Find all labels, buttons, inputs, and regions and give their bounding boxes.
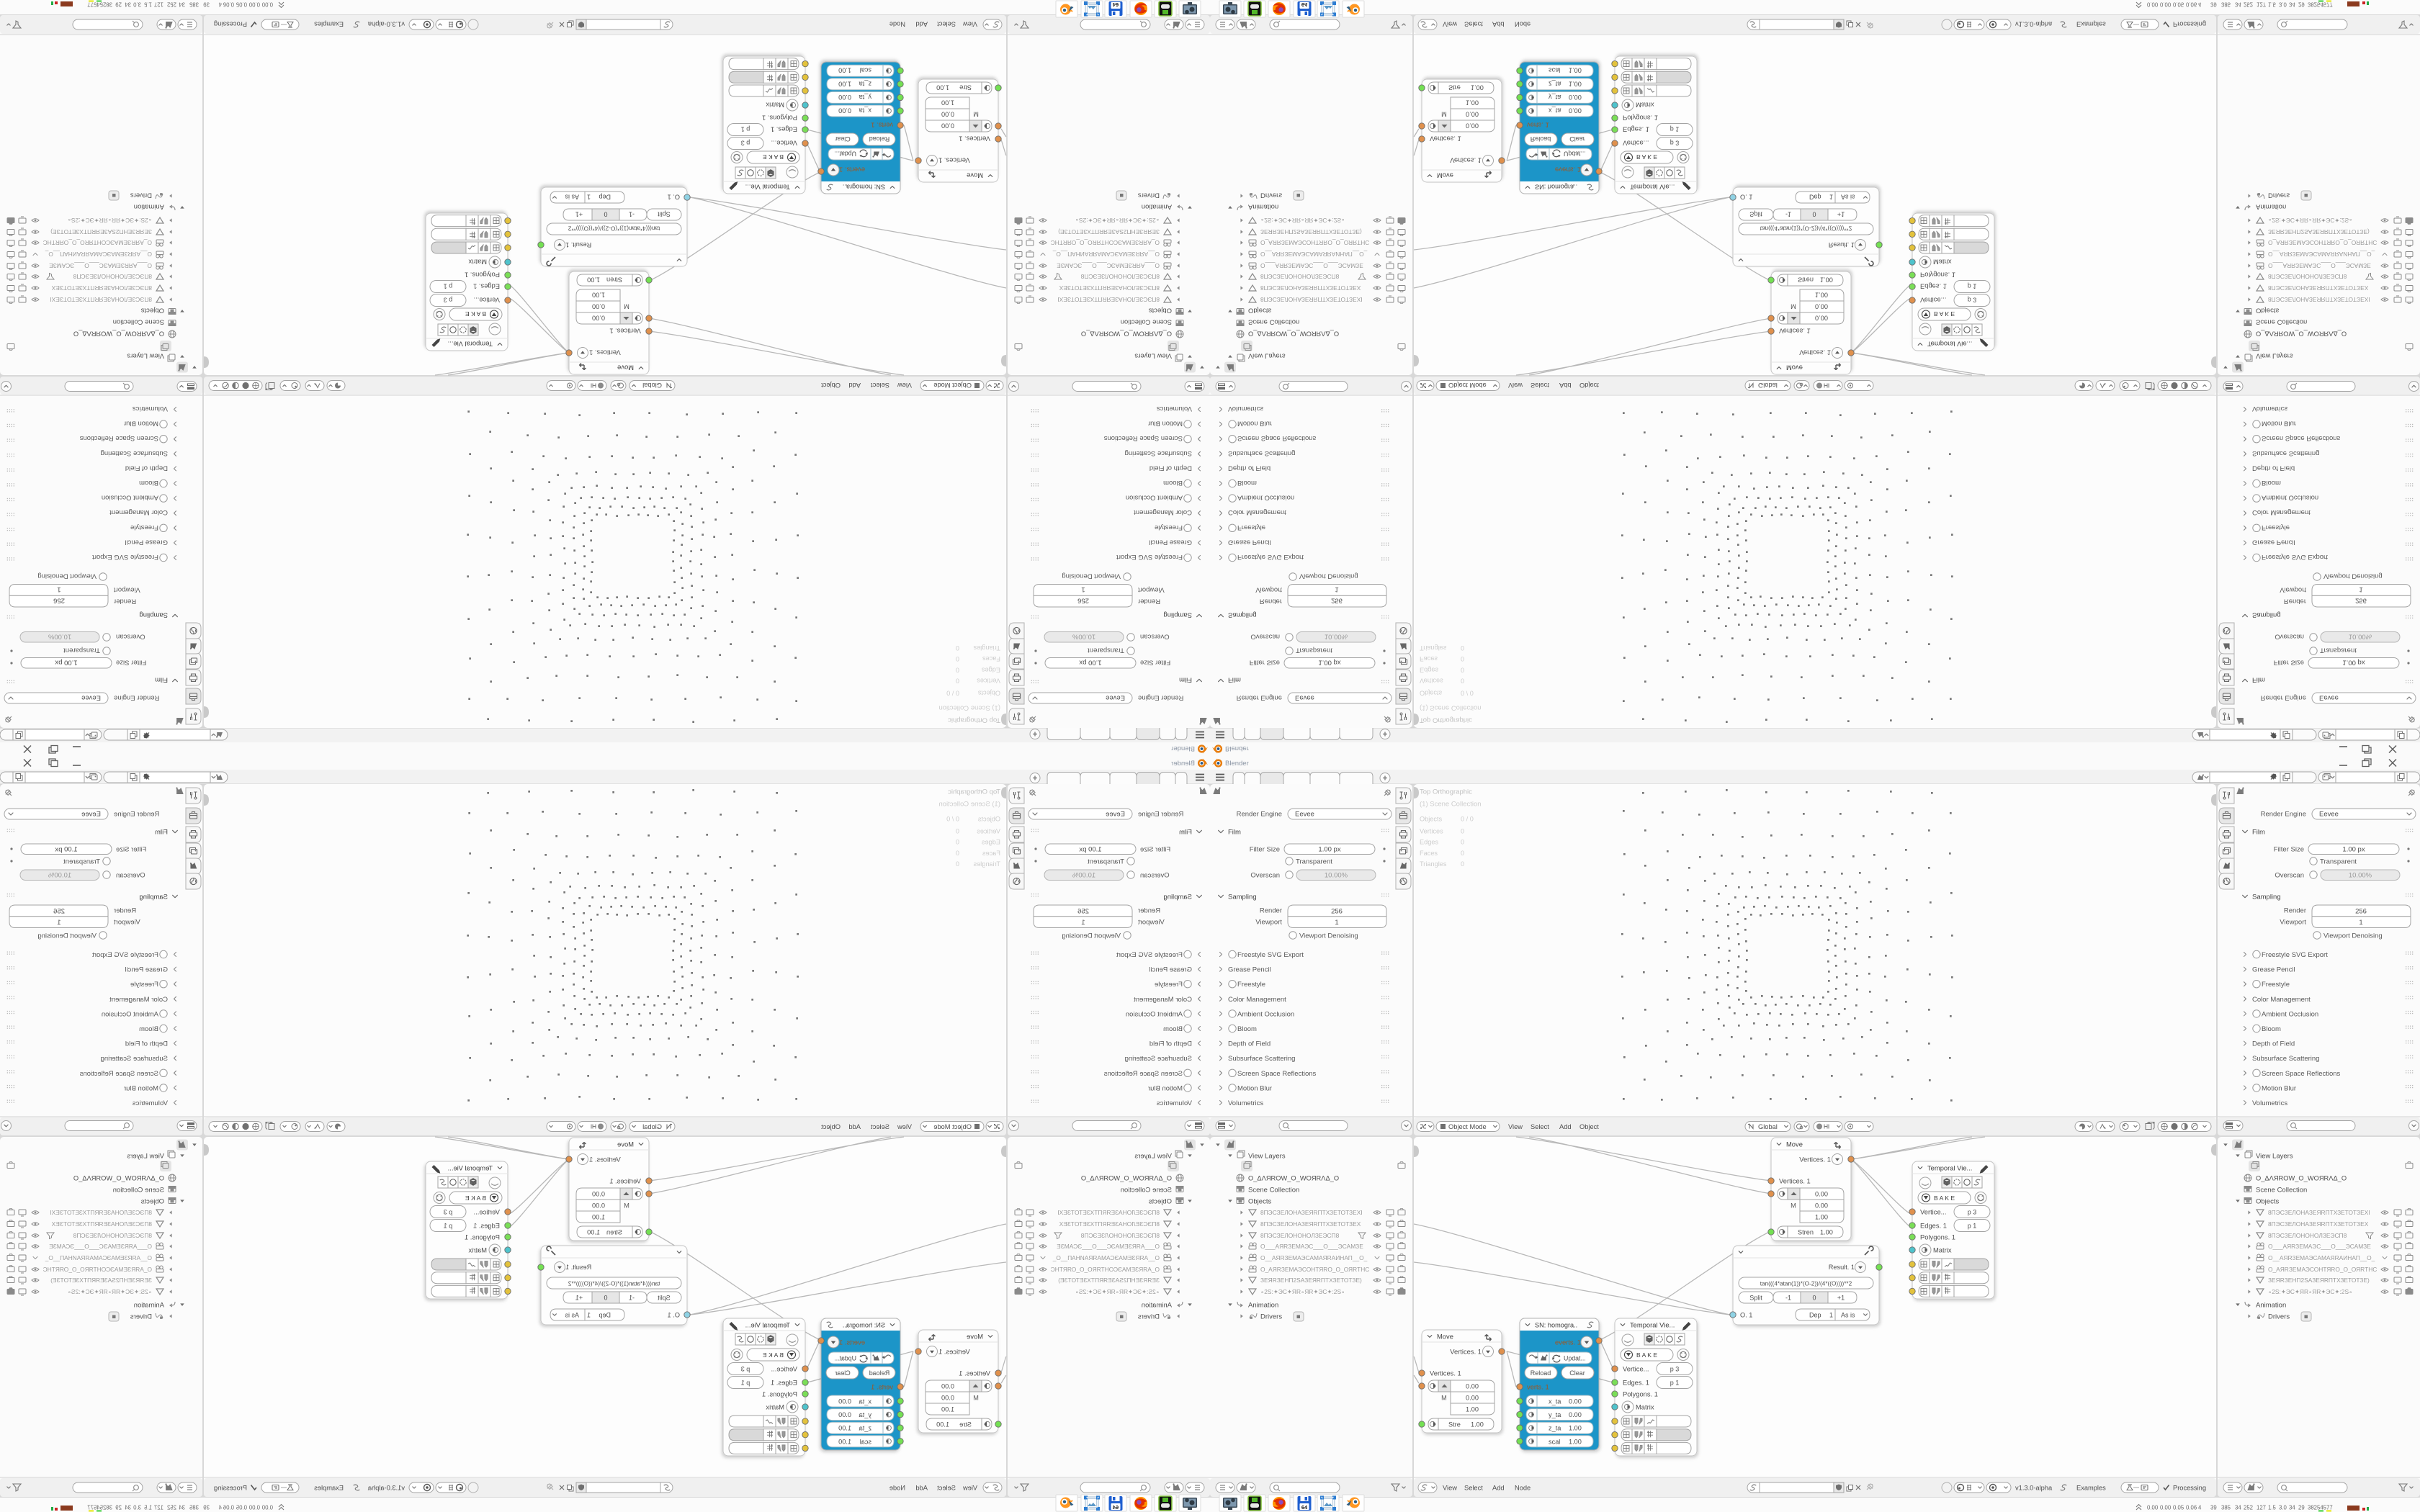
svg-text:Node: Node <box>1515 1485 1531 1492</box>
svg-text:256: 256 <box>2355 908 2367 916</box>
svg-text:Vertices: Vertices <box>1420 828 1443 835</box>
svg-text:Temporal Vie...: Temporal Vie... <box>1927 1164 1972 1172</box>
svg-text:0: 0 <box>1461 860 1464 868</box>
svg-text:8ПЭСЗЕЛОНОНОЛЗЕЭСП8: 8ПЭСЗЕЛОНОНОЛЗЕЭСП8 <box>2268 1232 2347 1239</box>
svg-text:Motion Blur: Motion Blur <box>2262 1084 2296 1092</box>
svg-text:y_ta: y_ta <box>1549 1411 1561 1418</box>
svg-text:View: View <box>1443 1485 1457 1492</box>
svg-text:M: M <box>1791 1202 1796 1210</box>
svg-text:p 3: p 3 <box>1968 1209 1977 1216</box>
svg-text:Viewport Denoising: Viewport Denoising <box>2323 932 2383 940</box>
svg-text:Motion Blur: Motion Blur <box>1237 1084 1272 1092</box>
svg-text:verts. 1: verts. 1 <box>1527 1383 1549 1391</box>
svg-text:Stren: Stren <box>1798 1229 1814 1236</box>
svg-text:Add: Add <box>1559 1123 1572 1130</box>
svg-text:Film: Film <box>2252 829 2265 837</box>
svg-text:3.0: 3.0 <box>2279 1505 2287 1511</box>
svg-text:Freestyle: Freestyle <box>2262 981 2290 989</box>
svg-text:1.5: 1.5 <box>2268 1505 2277 1511</box>
svg-text:Scene Collection: Scene Collection <box>1248 1187 1299 1194</box>
svg-text:0: 0 <box>1461 828 1464 835</box>
svg-text:34: 34 <box>2289 1505 2295 1511</box>
svg-text:B A K E: B A K E <box>1636 1351 1657 1359</box>
svg-text:Subsurface Scattering: Subsurface Scattering <box>1228 1055 1295 1063</box>
svg-text:Move: Move <box>1437 1333 1453 1341</box>
svg-text:View: View <box>1508 1123 1523 1130</box>
svg-text:29: 29 <box>2298 1505 2305 1511</box>
svg-text:Transparent: Transparent <box>2320 858 2357 866</box>
svg-text:1.00: 1.00 <box>1466 1406 1479 1413</box>
svg-text:0: 0 <box>1812 1295 1816 1302</box>
svg-text:Vertice...: Vertice... <box>1623 1365 1649 1373</box>
svg-text:1.00: 1.00 <box>1820 1229 1833 1236</box>
svg-text:Animation: Animation <box>2256 1302 2286 1310</box>
svg-text:View Layers: View Layers <box>1248 1153 1286 1161</box>
svg-text:Select: Select <box>1464 1485 1483 1492</box>
svg-text:Transparent: Transparent <box>1296 858 1332 866</box>
svg-text:Bloom: Bloom <box>2262 1025 2281 1033</box>
svg-text:1.00: 1.00 <box>1569 1425 1582 1432</box>
svg-text:Overscan: Overscan <box>1250 872 1280 880</box>
svg-text:Split: Split <box>1749 1295 1762 1302</box>
svg-text:Screen Space Reflections: Screen Space Reflections <box>2262 1070 2341 1078</box>
svg-text:Viewport: Viewport <box>1255 919 1282 927</box>
svg-text:10.00%: 10.00% <box>1325 872 1348 880</box>
svg-text:0.00: 0.00 <box>2160 1505 2172 1511</box>
svg-text:Eevee: Eevee <box>1295 811 1314 819</box>
svg-text:0.00: 0.00 <box>1815 1191 1828 1198</box>
svg-text:Examples: Examples <box>2076 1485 2106 1492</box>
svg-text:O__AЯRЗЕМАЭСАМАЯRАИНАП__O_: O__AЯRЗЕМАЭСАМАЯRАИНАП__O_ <box>1260 1254 1368 1261</box>
svg-text:Clear: Clear <box>1569 1369 1585 1377</box>
svg-text:Updat...: Updat... <box>1564 1355 1586 1362</box>
svg-text:38254577: 38254577 <box>2308 1505 2333 1511</box>
svg-text:Scene Collection: Scene Collection <box>2256 1187 2307 1194</box>
svg-text:Temporal Vie...: Temporal Vie... <box>1630 1321 1675 1329</box>
svg-text:∘2S:✦ЭС✦ЯR∘ЯR✦ЭС✦:2S∘: ∘2S:✦ЭС✦ЯR∘ЯR✦ЭС✦:2S∘ <box>1260 1288 1345 1295</box>
svg-text:10.00%: 10.00% <box>2349 872 2372 880</box>
svg-text:Edges: Edges <box>1420 839 1438 846</box>
svg-text:Screen Space Reflections: Screen Space Reflections <box>1237 1070 1317 1078</box>
svg-text:Freestyle SVG Export: Freestyle SVG Export <box>2262 951 2328 959</box>
svg-text:(1) Scene Collection: (1) Scene Collection <box>1420 801 1482 809</box>
svg-text:O___AЯRЗЕМАЭС___O___ЭСАМЗЕ: O___AЯRЗЕМАЭС___O___ЭСАМЗЕ <box>1260 1243 1363 1250</box>
svg-text:1.00 px: 1.00 px <box>2342 846 2365 854</box>
svg-text:1.00: 1.00 <box>1569 1438 1582 1445</box>
svg-text:Freestyle SVG Export: Freestyle SVG Export <box>1237 951 1304 959</box>
svg-text:1: 1 <box>2359 919 2362 927</box>
svg-text:O_AЯRЗЕМАЭСОНТЯRО_O_ОЯRТНС: O_AЯRЗЕМАЭСОНТЯRО_O_ОЯRТНС <box>1260 1266 1369 1273</box>
svg-text:Depth of Field: Depth of Field <box>1228 1040 1270 1048</box>
svg-text:x_ta: x_ta <box>1549 1398 1561 1405</box>
svg-text:Ambient Occlusion: Ambient Occlusion <box>2262 1010 2318 1018</box>
svg-text:Film: Film <box>1228 829 1241 837</box>
svg-text:39: 39 <box>2210 1505 2217 1511</box>
svg-text:127: 127 <box>2257 1505 2266 1511</box>
svg-text:Subsurface Scattering: Subsurface Scattering <box>2252 1055 2319 1063</box>
svg-text:0.06: 0.06 <box>2186 1505 2197 1511</box>
svg-text:4: 4 <box>2198 1505 2202 1511</box>
svg-text:Dep: Dep <box>1809 1312 1821 1319</box>
svg-text:As is: As is <box>1841 1312 1855 1319</box>
svg-text:Matrix: Matrix <box>1933 1246 1952 1254</box>
svg-text:M: M <box>1441 1395 1447 1402</box>
svg-text:64: 64 <box>1301 1504 1308 1511</box>
svg-text:Animation: Animation <box>1248 1302 1278 1310</box>
svg-text:O_AЯRЗЕМАЭСОНТЯRО_O_ОЯRТНС: O_AЯRЗЕМАЭСОНТЯRО_O_ОЯRТНС <box>2268 1266 2377 1273</box>
svg-text:B A K E: B A K E <box>1934 1194 1955 1202</box>
svg-text:0: 0 <box>1461 850 1464 857</box>
svg-text:ЗЕЯRЗЕНП2SАЗЕЯRПТХЗЕТОТЗЕ): ЗЕЯRЗЕНП2SАЗЕЯRПТХЗЕТОТЗЕ) <box>2268 1277 2370 1284</box>
svg-text:256: 256 <box>1331 908 1343 916</box>
svg-text:O_ΔΛЯROW_O_WOЯRΛΔ_O: O_ΔΛЯROW_O_WOЯRΛΔ_O <box>2256 1175 2347 1182</box>
svg-text:Vertices. 1: Vertices. 1 <box>1779 1177 1811 1185</box>
svg-text:+1: +1 <box>1837 1295 1845 1302</box>
svg-text:Polygons. 1: Polygons. 1 <box>1920 1233 1955 1241</box>
svg-text:ЗЕЯRЗЕНП2SАЗЕЯRПТХЗЕТОТЗЕ): ЗЕЯRЗЕНП2SАЗЕЯRПТХЗЕТОТЗЕ) <box>1260 1277 1362 1284</box>
svg-text:everts. 1: everts. 1 <box>1555 1338 1581 1346</box>
svg-text:Objects: Objects <box>1420 816 1443 823</box>
svg-text:p 1: p 1 <box>1670 1380 1680 1387</box>
svg-text:385: 385 <box>2221 1505 2231 1511</box>
svg-text:Eevee: Eevee <box>2319 811 2339 819</box>
svg-text:0.00: 0.00 <box>1569 1411 1582 1418</box>
svg-text:0.00: 0.00 <box>1466 1383 1479 1390</box>
svg-text:Overscan: Overscan <box>2275 872 2304 880</box>
svg-text:O. 1: O. 1 <box>1740 1312 1752 1319</box>
svg-text:Render Engine: Render Engine <box>1237 811 1282 819</box>
svg-text:z_ta: z_ta <box>1549 1425 1561 1432</box>
svg-text:Add: Add <box>1492 1485 1505 1492</box>
svg-text:Select: Select <box>1531 1123 1549 1130</box>
svg-text:0.00: 0.00 <box>1466 1395 1479 1402</box>
svg-text:Viewport: Viewport <box>2280 919 2306 927</box>
svg-text:Move: Move <box>1786 1140 1803 1148</box>
svg-text:-1: -1 <box>1785 1295 1791 1302</box>
svg-text:Stre: Stre <box>1448 1421 1461 1428</box>
svg-text:Objects: Objects <box>2256 1198 2279 1206</box>
svg-text:Blender: Blender <box>1225 760 1249 768</box>
svg-text:Processing: Processing <box>2173 1485 2206 1492</box>
svg-text:scal: scal <box>1549 1438 1560 1445</box>
svg-text:Object Mode: Object Mode <box>1448 1123 1487 1130</box>
svg-text:Global: Global <box>1758 1123 1778 1130</box>
svg-text:8ПЭСЗЕЛОНАЗЕЯRПТХЗЕТОТЗЕХI: 8ПЭСЗЕЛОНАЗЕЯRПТХЗЕТОТЗЕХI <box>2268 1209 2370 1216</box>
svg-text:Volumetrics: Volumetrics <box>2252 1099 2287 1107</box>
svg-text:Render: Render <box>1260 907 1282 915</box>
svg-text:0.00: 0.00 <box>2147 1505 2159 1511</box>
svg-text:Render Engine: Render Engine <box>2261 811 2306 819</box>
svg-text:Grease Pencil: Grease Pencil <box>1228 966 1271 974</box>
svg-text:Sampling: Sampling <box>2252 894 2281 901</box>
svg-text:0 / 0: 0 / 0 <box>1461 816 1474 823</box>
svg-text:Faces: Faces <box>1420 850 1438 857</box>
svg-text:p 3: p 3 <box>1670 1366 1680 1373</box>
svg-text:Drivers: Drivers <box>1260 1313 1282 1321</box>
svg-text:Drivers: Drivers <box>2268 1313 2290 1321</box>
svg-text:Color Management: Color Management <box>2252 996 2311 1004</box>
svg-text:0: 0 <box>1461 839 1464 846</box>
svg-text:Bloom: Bloom <box>1237 1025 1257 1033</box>
svg-text:Viewport Denoising: Viewport Denoising <box>1299 932 1358 940</box>
svg-text:Edges. 1: Edges. 1 <box>1623 1379 1649 1387</box>
svg-text:Triangles: Triangles <box>1420 860 1447 868</box>
svg-text:Matrix: Matrix <box>1636 1403 1654 1411</box>
svg-text:v1.3.0-alpha: v1.3.0-alpha <box>2015 1485 2053 1492</box>
svg-text:Vertices. 1: Vertices. 1 <box>1799 1156 1831 1164</box>
svg-text:252: 252 <box>2244 1505 2253 1511</box>
svg-text:Result. 1: Result. 1 <box>1829 1264 1855 1271</box>
svg-text:Polygons. 1: Polygons. 1 <box>1623 1390 1658 1398</box>
svg-text:8ПЭСЗЕЛОНОНОЛЗЕЭСП8: 8ПЭСЗЕЛОНОНОЛЗЕЭСП8 <box>1260 1232 1340 1239</box>
svg-text:Filter Size: Filter Size <box>1250 846 1280 854</box>
svg-text:Filter Size: Filter Size <box>2274 846 2304 854</box>
svg-text:Edges. 1: Edges. 1 <box>1920 1222 1947 1230</box>
svg-text:View Layers: View Layers <box>2256 1153 2293 1161</box>
svg-text:Volumetrics: Volumetrics <box>1228 1099 1263 1107</box>
svg-text:SN: homogra..: SN: homogra.. <box>1535 1322 1577 1329</box>
svg-text:Sampling: Sampling <box>1228 894 1257 901</box>
svg-text:Color Management: Color Management <box>1228 996 1286 1004</box>
svg-text:Objects: Objects <box>1248 1198 1271 1206</box>
svg-text:0.05: 0.05 <box>2173 1505 2184 1511</box>
svg-text:34: 34 <box>2235 1505 2241 1511</box>
svg-text:Grease Pencil: Grease Pencil <box>2252 966 2295 974</box>
svg-text:∘2S:✦ЭС✦ЯR∘ЯR✦ЭС✦:2S∘: ∘2S:✦ЭС✦ЯR∘ЯR✦ЭС✦:2S∘ <box>2268 1288 2352 1295</box>
svg-text:tan(((4*atan(1))*(O-2))/(4*((O: tan(((4*atan(1))*(O-2))/(4*((O))))**2 <box>1760 1281 1852 1287</box>
svg-text:8ПЭСЗЕЛОНАЗЕЯRПТХЗЕТОТЗЕХI: 8ПЭСЗЕЛОНАЗЕЯRПТХЗЕТОТЗЕХI <box>1260 1209 1363 1216</box>
svg-text:Freestyle: Freestyle <box>1237 981 1265 989</box>
svg-text:8ПЭСЗЕЛОНАЗЕЯRПТХЗЕТОТЗЕХ: 8ПЭСЗЕЛОНАЗЕЯRПТХЗЕТОТЗЕХ <box>1260 1220 1361 1228</box>
svg-text:Vertice...: Vertice... <box>1920 1208 1946 1216</box>
svg-text:1.00: 1.00 <box>1471 1421 1484 1428</box>
svg-text:0.00: 0.00 <box>1569 1398 1582 1405</box>
svg-text:Vertices. 1: Vertices. 1 <box>1430 1369 1461 1377</box>
svg-text:1.00 px: 1.00 px <box>1318 846 1340 854</box>
svg-text:Vertices. 1: Vertices. 1 <box>1450 1348 1482 1356</box>
svg-text:Ambient Occlusion: Ambient Occlusion <box>1237 1010 1294 1018</box>
svg-text:0.00: 0.00 <box>1815 1202 1828 1210</box>
svg-text:O__AЯRЗЕМАЭСАМАЯRАИНАП__O_: O__AЯRЗЕМАЭСАМАЯRАИНАП__O_ <box>2268 1254 2375 1261</box>
svg-text:8ПЭСЗЕЛОНАЗЕЯRПТХЗЕТОТЗЕХ: 8ПЭСЗЕЛОНАЗЕЯRПТХЗЕТОТЗЕХ <box>2268 1220 2369 1228</box>
svg-text:O___AЯRЗЕМАЭС___O___ЭСАМЗЕ: O___AЯRЗЕМАЭС___O___ЭСАМЗЕ <box>2268 1243 2371 1250</box>
svg-text:Render: Render <box>2284 907 2306 915</box>
svg-text:Reload: Reload <box>1531 1369 1551 1377</box>
svg-text:Top Orthographic: Top Orthographic <box>1420 788 1472 796</box>
svg-text:Object: Object <box>1579 1123 1599 1130</box>
svg-text:O_ΔΛЯROW_O_WOЯRΛΔ_O: O_ΔΛЯROW_O_WOЯRΛΔ_O <box>1248 1175 1339 1182</box>
svg-text:1: 1 <box>1335 919 1338 927</box>
svg-text:1.00: 1.00 <box>1815 1214 1828 1221</box>
svg-text:1: 1 <box>1829 1312 1833 1319</box>
svg-text:p 1: p 1 <box>1968 1223 1977 1230</box>
svg-text:Depth of Field: Depth of Field <box>2252 1040 2295 1048</box>
